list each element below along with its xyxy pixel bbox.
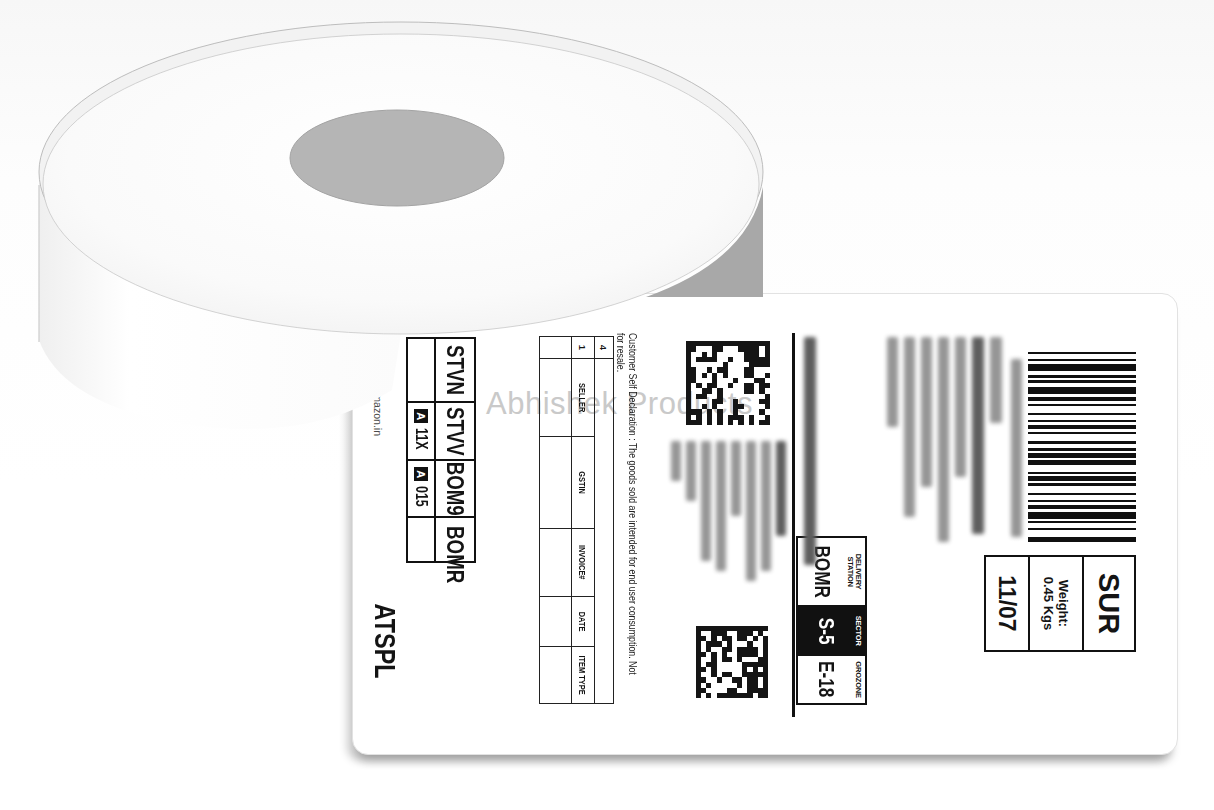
carrier-name: ATSPL (368, 593, 402, 689)
routing-cell-sector: SECTOR S-5 (798, 605, 865, 654)
service-box: SUR Weight: 0.45 Kgs 11/07 (984, 555, 1136, 652)
routing-label: DELIVERY STATION (846, 554, 862, 590)
routing-value: E-18 (798, 656, 854, 702)
table-cell (540, 646, 571, 703)
table-cell (540, 528, 571, 596)
weight-cell: Weight: 0.45 Kgs (1028, 557, 1082, 650)
order-id-redacted (804, 337, 816, 565)
routing-label: SECTOR (854, 616, 862, 646)
table-header-invoice: INVOICE# (572, 528, 594, 596)
ship-to-address-redacted (881, 337, 1002, 542)
shipping-barcode (1028, 352, 1136, 545)
label-roll-graphic (0, 0, 800, 470)
service-code: SUR (1082, 557, 1134, 650)
routing-value: S-5 (798, 614, 854, 648)
qr-code-right (696, 626, 768, 698)
routing-label: GROZONE (854, 661, 862, 698)
weight-label: Weight: (1056, 580, 1071, 627)
table-header-item-type: ITEM TYPE (572, 646, 594, 703)
routing-cell-grozone: GROZONE E-18 (798, 654, 865, 703)
sort-subcode (408, 516, 434, 561)
table-cell (540, 596, 571, 646)
table-header-date: DATE (572, 596, 594, 646)
barcode-number-redacted (1011, 359, 1022, 537)
ship-date: 11/07 (986, 557, 1028, 650)
weight-value: 0.45 Kgs (1041, 577, 1056, 630)
roll-core (290, 110, 504, 206)
sort-code: BOMR (436, 516, 474, 591)
